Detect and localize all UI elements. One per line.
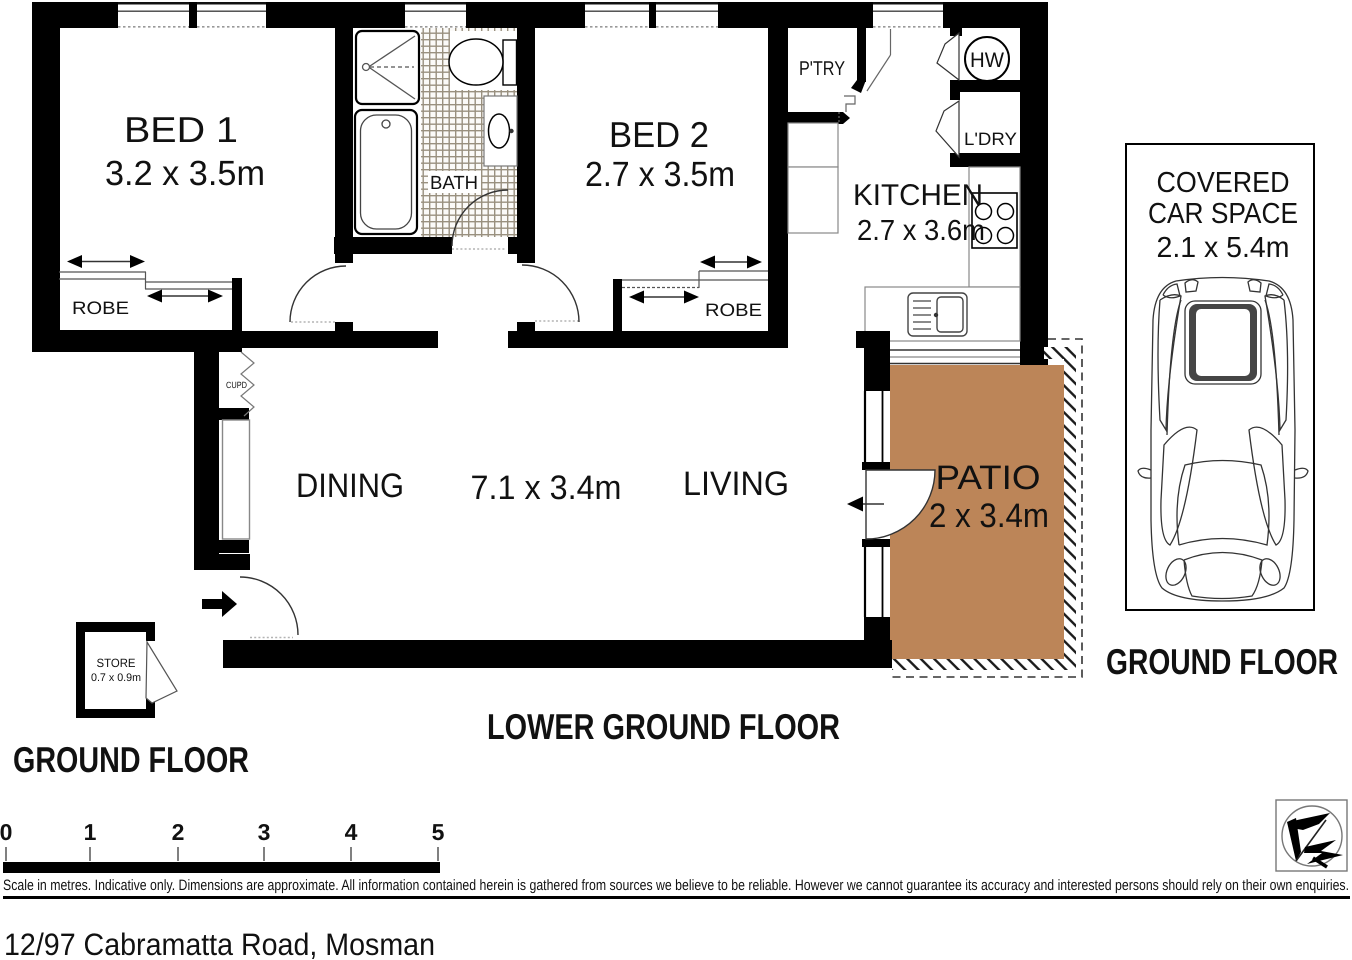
svg-text:0: 0 [0,819,12,845]
svg-text:STORE: STORE [97,656,136,670]
svg-text:3.2 x 3.5m: 3.2 x 3.5m [105,154,265,193]
svg-text:PATIO: PATIO [936,459,1041,497]
svg-text:CAR SPACE: CAR SPACE [1148,198,1298,230]
svg-text:ROBE: ROBE [705,300,762,320]
svg-text:HW: HW [970,49,1004,72]
svg-text:COVERED: COVERED [1157,167,1290,199]
svg-text:7.1 x 3.4m: 7.1 x 3.4m [471,469,622,507]
svg-text:5: 5 [432,819,445,845]
svg-text:2: 2 [172,819,185,845]
svg-text:0.7 x 0.9m: 0.7 x 0.9m [91,672,141,684]
svg-text:LOWER GROUND FLOOR: LOWER GROUND FLOOR [487,706,840,747]
svg-text:ROBE: ROBE [72,298,129,318]
svg-text:GROUND FLOOR: GROUND FLOOR [1106,641,1338,682]
svg-text:BED 1: BED 1 [124,109,238,150]
svg-text:DINING: DINING [296,467,404,505]
svg-text:4: 4 [345,819,358,845]
svg-text:L'DRY: L'DRY [964,129,1017,149]
svg-text:2.1 x 5.4m: 2.1 x 5.4m [1157,232,1290,264]
svg-text:2.7 x 3.5m: 2.7 x 3.5m [585,155,735,194]
svg-text:BED 2: BED 2 [609,114,709,155]
svg-text:BATH: BATH [430,173,478,194]
svg-text:2.7 x 3.6m: 2.7 x 3.6m [857,215,985,247]
svg-text:CUPD: CUPD [226,380,247,390]
svg-text:KITCHEN: KITCHEN [853,179,983,212]
svg-text:LIVING: LIVING [683,465,789,503]
svg-text:Scale in metres. Indicative on: Scale in metres. Indicative only. Dimens… [3,877,1349,894]
svg-text:2 x 3.4m: 2 x 3.4m [929,497,1049,535]
svg-text:3: 3 [258,819,271,845]
svg-text:1: 1 [84,819,97,845]
svg-text:12/97 Cabramatta Road, Mosman: 12/97 Cabramatta Road, Mosman [4,927,435,960]
svg-text:P'TRY: P'TRY [799,58,845,80]
svg-text:GROUND FLOOR: GROUND FLOOR [13,739,249,780]
